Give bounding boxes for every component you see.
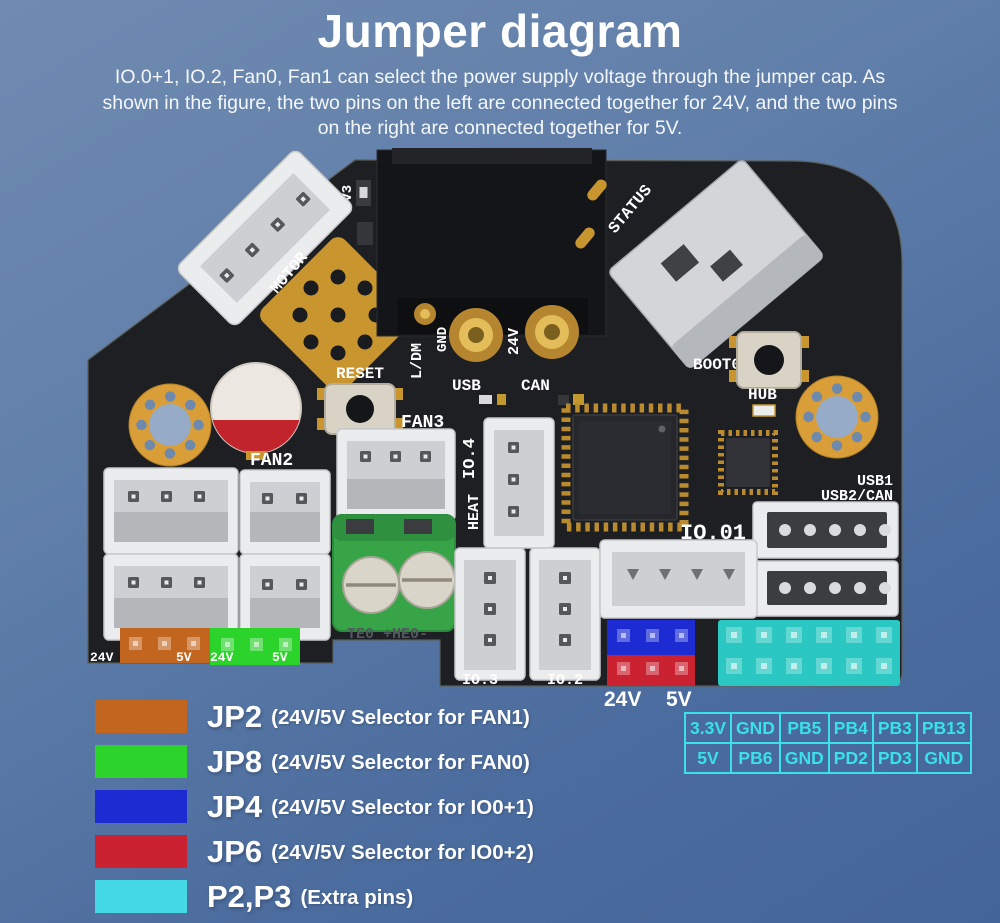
- jp2-jumper: [120, 628, 210, 663]
- label-usb: USB: [452, 377, 481, 395]
- 24v-terminal-post: [525, 305, 579, 359]
- io2-connector: [530, 548, 600, 680]
- legend-swatch-p2p3: [95, 880, 187, 913]
- label-jumper-24v: 24V: [604, 688, 641, 711]
- legend-name-jp6: JP6: [207, 834, 262, 870]
- pin-cell: PB6: [731, 743, 780, 773]
- legend-desc-jp8: (24V/5V Selector for FAN0): [271, 748, 530, 775]
- legend: JP2 (24V/5V Selector for FAN1) JP8 (24V/…: [95, 700, 534, 923]
- legend-desc-jp6: (24V/5V Selector for IO0+2): [271, 838, 534, 865]
- legend-desc-jp4: (24V/5V Selector for IO0+1): [271, 793, 534, 820]
- label-hub: HUB: [748, 386, 777, 404]
- pin-table-row-2: 5V PB6 GND PD2 PD3 GND: [685, 743, 971, 773]
- pin-cell: PB5: [780, 713, 829, 743]
- legend-name-jp4: JP4: [207, 789, 262, 825]
- connector-grid-top-right: [240, 470, 330, 554]
- legend-item-p2p3: P2,P3 (Extra pins): [95, 880, 534, 913]
- pin-cell: PB4: [829, 713, 873, 743]
- legend-swatch-jp6: [95, 835, 187, 868]
- label-io2: IO.2: [547, 672, 583, 689]
- mounting-hole-right: [796, 376, 878, 458]
- label-te0-he0: TE0 +HE0-: [347, 626, 428, 643]
- mounting-hole-left: [129, 384, 211, 466]
- heat-connector: [484, 418, 554, 548]
- pin-cell: GND: [917, 743, 971, 773]
- label-can: CAN: [521, 377, 550, 395]
- connector-grid-bottom-right: [240, 554, 330, 640]
- reset-button: [317, 384, 403, 434]
- io3-connector: [455, 548, 525, 680]
- legend-name-jp8: JP8: [207, 744, 262, 780]
- terminal-block: [333, 515, 455, 631]
- pin-cell: GND: [780, 743, 829, 773]
- power-connector: [377, 148, 606, 336]
- label-io4: IO.4: [461, 438, 480, 479]
- pin-cell: 5V: [685, 743, 731, 773]
- label-24v-post: 24V: [506, 328, 523, 355]
- label-io3: IO.3: [462, 672, 498, 689]
- legend-item-jp8: JP8 (24V/5V Selector for FAN0): [95, 745, 534, 778]
- io0-connector: [600, 540, 757, 618]
- label-fan0-5v: 5V: [272, 650, 288, 665]
- pin-cell: PB3: [873, 713, 917, 743]
- boot0-button: [729, 332, 809, 388]
- label-ldm: L/DM: [409, 343, 426, 379]
- legend-desc-p2p3: (Extra pins): [300, 883, 413, 910]
- legend-item-jp4: JP4 (24V/5V Selector for IO0+1): [95, 790, 534, 823]
- ldm-pad: [414, 303, 436, 325]
- usb2-connector: [753, 561, 898, 616]
- legend-swatch-jp4: [95, 790, 187, 823]
- label-gnd: GND: [435, 327, 451, 352]
- page-description: IO.0+1, IO.2, Fan0, Fan1 can select the …: [94, 65, 906, 142]
- pin-cell: PD3: [873, 743, 917, 773]
- pin-cell: PB13: [917, 713, 971, 743]
- connector-grid-top-left: [104, 468, 238, 554]
- label-fan1-24v: 24V: [90, 650, 114, 665]
- legend-desc-jp2: (24V/5V Selector for FAN1): [271, 703, 530, 730]
- board-illustration: 3V3 MOTOR STATUS: [0, 148, 1000, 713]
- connector-grid-bottom-left: [104, 554, 238, 640]
- pin-cell: GND: [731, 713, 780, 743]
- legend-name-p2p3: P2,P3: [207, 879, 291, 915]
- page-title: Jumper diagram: [0, 4, 1000, 58]
- legend-item-jp2: JP2 (24V/5V Selector for FAN1): [95, 700, 534, 733]
- label-reset: RESET: [336, 365, 384, 383]
- page: Jumper diagram IO.0+1, IO.2, Fan0, Fan1 …: [0, 0, 1000, 923]
- legend-swatch-jp8: [95, 745, 187, 778]
- legend-item-jp6: JP6 (24V/5V Selector for IO0+2): [95, 835, 534, 868]
- label-heat: HEAT: [466, 494, 483, 530]
- pin-cell: 3.3V: [685, 713, 731, 743]
- hub-led: [753, 405, 775, 416]
- extra-pins-table: 3.3V GND PB5 PB4 PB3 PB13 5V PB6 GND PD2…: [684, 712, 972, 774]
- usb1-connector: [753, 502, 898, 558]
- header: Jumper diagram IO.0+1, IO.2, Fan0, Fan1 …: [0, 2, 1000, 142]
- usb-hub-chip: [721, 433, 775, 492]
- label-jumper-5v: 5V: [666, 688, 692, 711]
- pin-cell: PD2: [829, 743, 873, 773]
- legend-name-jp2: JP2: [207, 699, 262, 735]
- jp6-jumper: [607, 655, 695, 686]
- jp4-jumper: [607, 620, 695, 655]
- legend-swatch-jp2: [95, 700, 187, 733]
- label-fan0-24v: 24V: [210, 650, 234, 665]
- pin-table-row-1: 3.3V GND PB5 PB4 PB3 PB13: [685, 713, 971, 743]
- p2p3-header: [718, 620, 900, 686]
- mcu-chip: [566, 408, 684, 527]
- label-fan2: FAN2: [250, 451, 293, 471]
- fan3-connector: [337, 429, 455, 521]
- label-fan1-5v: 5V: [176, 650, 192, 665]
- gnd-terminal-post: [449, 308, 503, 362]
